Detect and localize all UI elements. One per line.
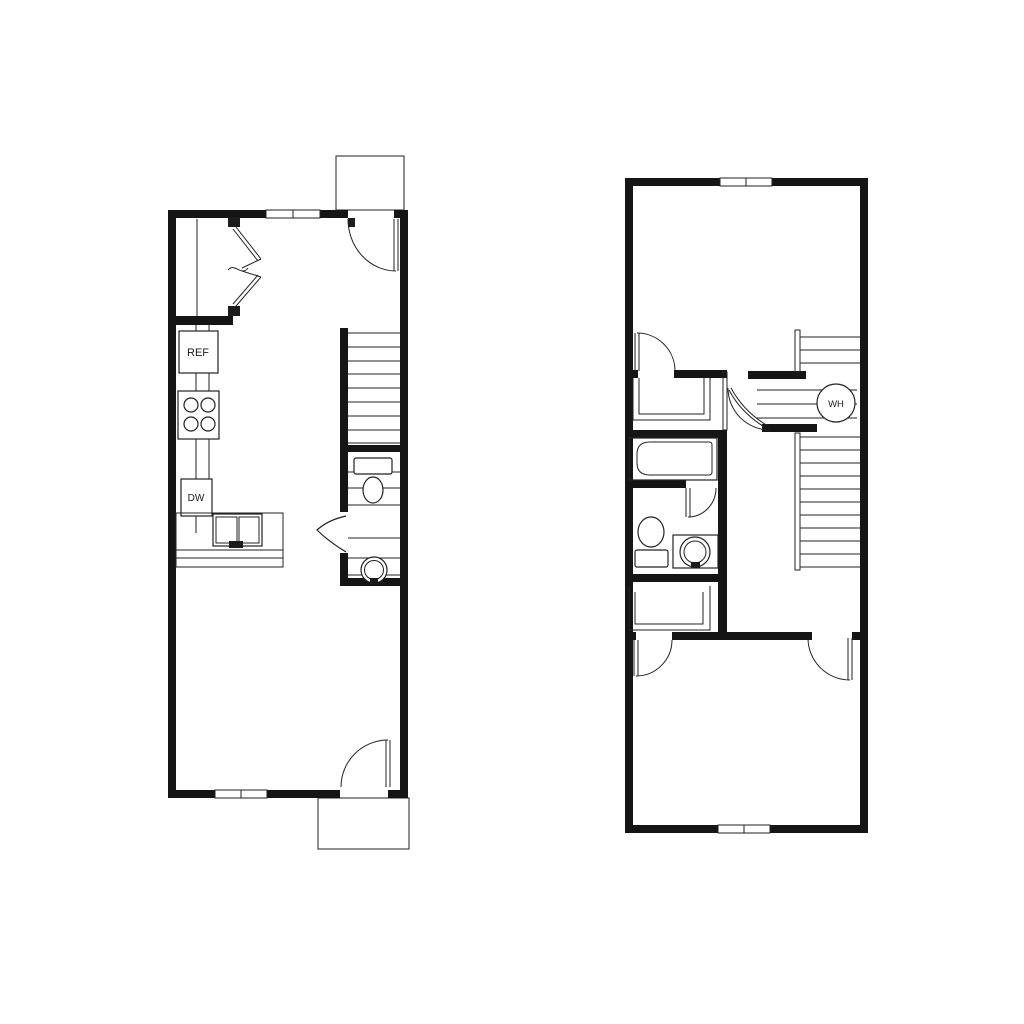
door-swing-arc (637, 333, 675, 371)
bedroom-door-top (635, 333, 675, 371)
sink-drain-icon (370, 578, 378, 584)
floorplan-canvas: REF DW (0, 0, 1024, 1024)
bifold-closet (168, 217, 261, 325)
kitchen: REF DW (176, 325, 283, 567)
rear-door (341, 740, 390, 787)
toilet-tank-icon (635, 550, 668, 567)
window-top-floor1 (266, 210, 320, 218)
door-swing-arc (348, 219, 396, 271)
door-swing-arc (688, 488, 716, 517)
water-heater-closet: WH (757, 384, 857, 422)
second-floor-plan: WH (625, 178, 868, 833)
bathroom (629, 438, 718, 568)
sink-counter (176, 513, 283, 567)
water-heater-door (728, 388, 770, 430)
stair-treads (800, 437, 860, 567)
bedroom-door-left (634, 640, 672, 676)
door-swing-arc (341, 740, 388, 787)
dishwasher-label: DW (188, 493, 205, 504)
range-icon (178, 391, 219, 439)
bathtub-icon (629, 438, 717, 480)
bedroom-closet-bottom (629, 586, 710, 630)
bifold-meeting-curve (228, 268, 248, 271)
floorplan-drawing: REF DW (0, 0, 1024, 1024)
staircase-floor2 (795, 330, 860, 570)
window-top-floor2 (720, 178, 772, 186)
powder-room (317, 458, 400, 584)
refrigerator-label: REF (187, 347, 209, 359)
stair-treads (348, 333, 400, 443)
first-floor-plan: REF DW (168, 156, 409, 849)
bedroom-closet-top (633, 378, 710, 420)
toilet-bowl-icon (638, 517, 664, 547)
bedroom-door-right (808, 638, 852, 680)
sink-drain-icon (691, 562, 700, 568)
outer-walls-floor2 (625, 178, 868, 833)
toilet-tank-icon (354, 458, 392, 474)
bifold-pivot (228, 306, 240, 316)
entry-door (348, 218, 398, 271)
entry-stoop (336, 156, 404, 210)
faucet-icon (229, 541, 243, 548)
bifold-pivot (228, 217, 240, 227)
toilet-bowl-icon (363, 477, 383, 503)
staircase-floor1 (340, 328, 408, 586)
water-heater-label: WH (828, 399, 844, 410)
powder-door-swing (317, 516, 346, 552)
rear-stoop (318, 798, 409, 849)
bathroom-door (686, 488, 716, 517)
door-swing-arc (636, 640, 672, 676)
window-bottom-floor2 (718, 825, 770, 833)
window-bottom-floor1 (215, 790, 267, 798)
door-swing-arc (808, 638, 850, 680)
vanity-sink (673, 535, 718, 568)
